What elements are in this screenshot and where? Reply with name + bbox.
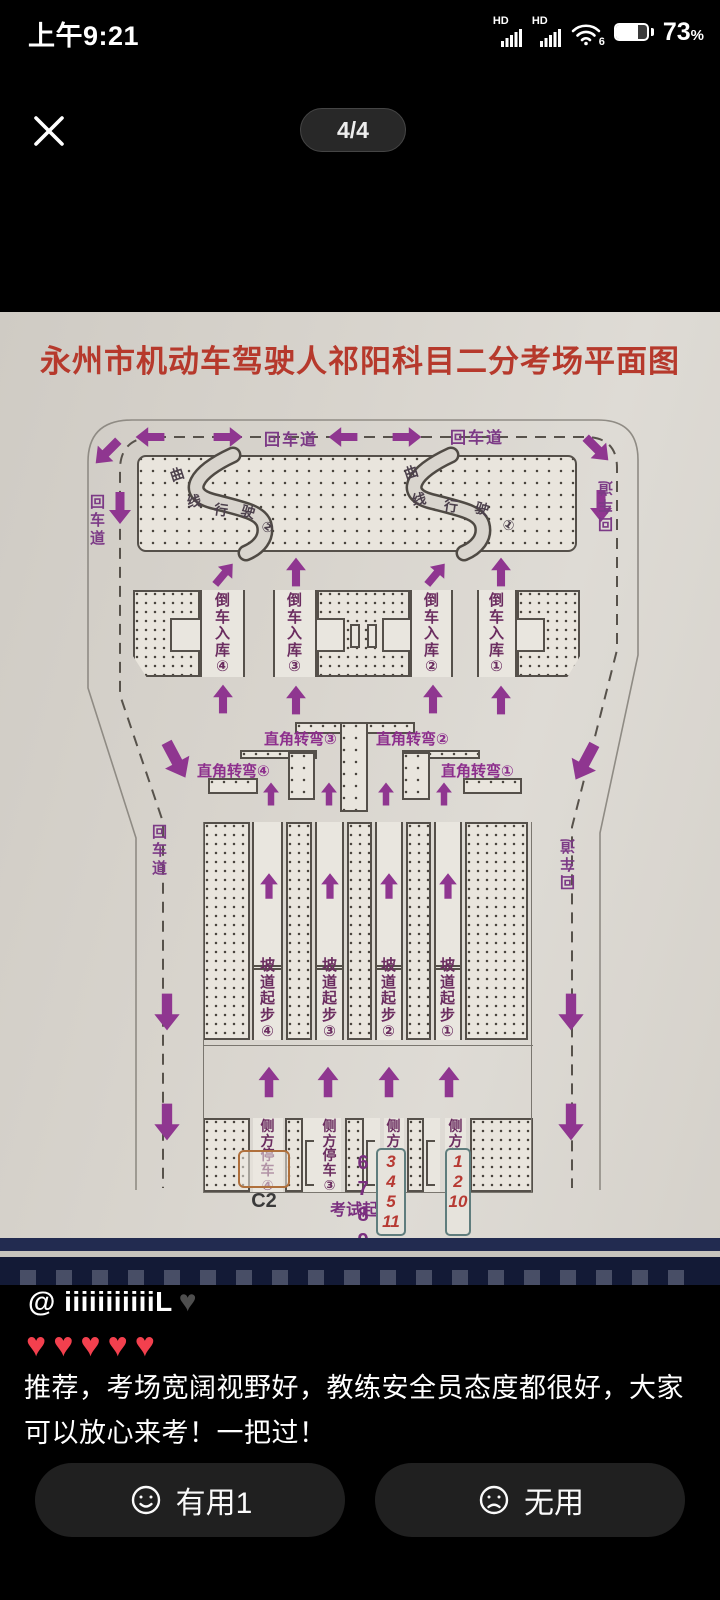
map-title: 永州市机动车驾驶人祁阳科目二分考场平面图: [20, 336, 700, 381]
ra-l-left-stem: [288, 752, 315, 800]
return-lane-label-right: 回车道: [596, 478, 617, 532]
return-lane-label-left-lower: 回车道: [148, 824, 169, 878]
right-angle-label: 直角转弯①: [441, 760, 525, 781]
useful-button[interactable]: 有用1: [35, 1463, 345, 1537]
curve-char: 行: [443, 495, 462, 517]
page-indicator: 4/4: [300, 108, 406, 152]
return-lane-label-right-lower: 回车道: [558, 836, 579, 890]
hd-label: HD: [532, 15, 548, 27]
return-lane-label-top-right: 回车道: [450, 424, 504, 448]
ramp-label: 坡道起步④: [259, 958, 276, 1041]
battery-percent: 73%: [663, 18, 704, 47]
ramp-strip: [465, 822, 528, 1040]
username-row: @ iiiiiiiiiiiL ♥: [28, 1286, 197, 1318]
ramp-label: 坡道起步①: [439, 958, 456, 1041]
c2-label: C2: [238, 1190, 290, 1213]
right-angle-label: 直角转弯④: [197, 760, 281, 781]
right-angle-label: 直角转弯②: [376, 728, 460, 749]
battery-icon: [614, 22, 654, 42]
review-text: 推荐，考场宽阔视野好，教练安全员态度都很好，大家可以放心来考！一把过！: [24, 1366, 704, 1456]
side-bay-slot: [424, 1118, 440, 1192]
reverse-parking-label: 倒车入库③: [286, 593, 303, 676]
c2-box: [238, 1150, 290, 1188]
ramp-strip: [406, 822, 431, 1040]
curve-char: 线: [410, 488, 429, 510]
course-map-photo[interactable]: 永州市机动车驾驶人祁阳科目二分考场平面图: [0, 312, 720, 1285]
red-hearts-icons: ♥♥♥♥♥: [26, 1326, 162, 1365]
wifi-icon: 6: [571, 15, 605, 49]
return-lane-label-left: 回车道: [86, 494, 107, 548]
clock: 上午9:21: [28, 14, 139, 53]
curve-char: 线: [185, 490, 204, 512]
hd-label: HD: [493, 15, 509, 27]
number-box-2: 1 2 10: [445, 1148, 471, 1236]
side-bay-dotted: [407, 1118, 424, 1192]
reverse-block-center: [317, 590, 410, 677]
ramp-label: 坡道起步③: [321, 958, 338, 1041]
side-block-right: [470, 1118, 533, 1192]
photo-banner-truncated: [0, 1257, 720, 1285]
ramp-strip: [203, 822, 250, 1040]
useless-button[interactable]: 无用: [375, 1463, 685, 1537]
curve-char: 行: [213, 499, 232, 521]
close-icon[interactable]: [30, 112, 68, 150]
ramp-strip: [347, 822, 372, 1040]
signal-icon: HD: [493, 15, 523, 49]
right-angle-label: 直角转弯③: [264, 728, 348, 749]
number-box-1: 3 4 5 11: [376, 1148, 406, 1236]
wifi6-label: 6: [599, 36, 605, 48]
photo-banner-stripe: [0, 1238, 720, 1251]
username: @ iiiiiiiiiiiL: [28, 1286, 173, 1318]
reverse-parking-label: 倒车入库④: [214, 593, 231, 676]
ramp-strip: [286, 822, 312, 1040]
reverse-parking-label: 倒车入库②: [423, 593, 440, 676]
status-icons: HD HD 6 73%: [493, 10, 704, 54]
side-parking-label: 侧方停车③: [321, 1119, 338, 1193]
return-lane-label-top-left: 回车道: [264, 426, 318, 450]
phone-screen: 上午9:21 HD HD 6 73% 4/4: [0, 0, 720, 1600]
ramp-label: 坡道起步②: [380, 958, 397, 1041]
ra-l-right-stem: [402, 752, 430, 800]
status-bar: 上午9:21 HD HD 6 73%: [0, 0, 720, 60]
frown-icon: [476, 1482, 512, 1518]
smiley-icon: [128, 1482, 164, 1518]
reverse-block-right: [517, 590, 580, 677]
side-bay-slot: [303, 1118, 318, 1192]
signal-icon-2: HD: [532, 15, 562, 49]
gray-heart-icon: ♥: [179, 1287, 197, 1317]
reverse-parking-label: 倒车入库①: [488, 593, 505, 676]
reverse-block-left: [133, 590, 200, 677]
